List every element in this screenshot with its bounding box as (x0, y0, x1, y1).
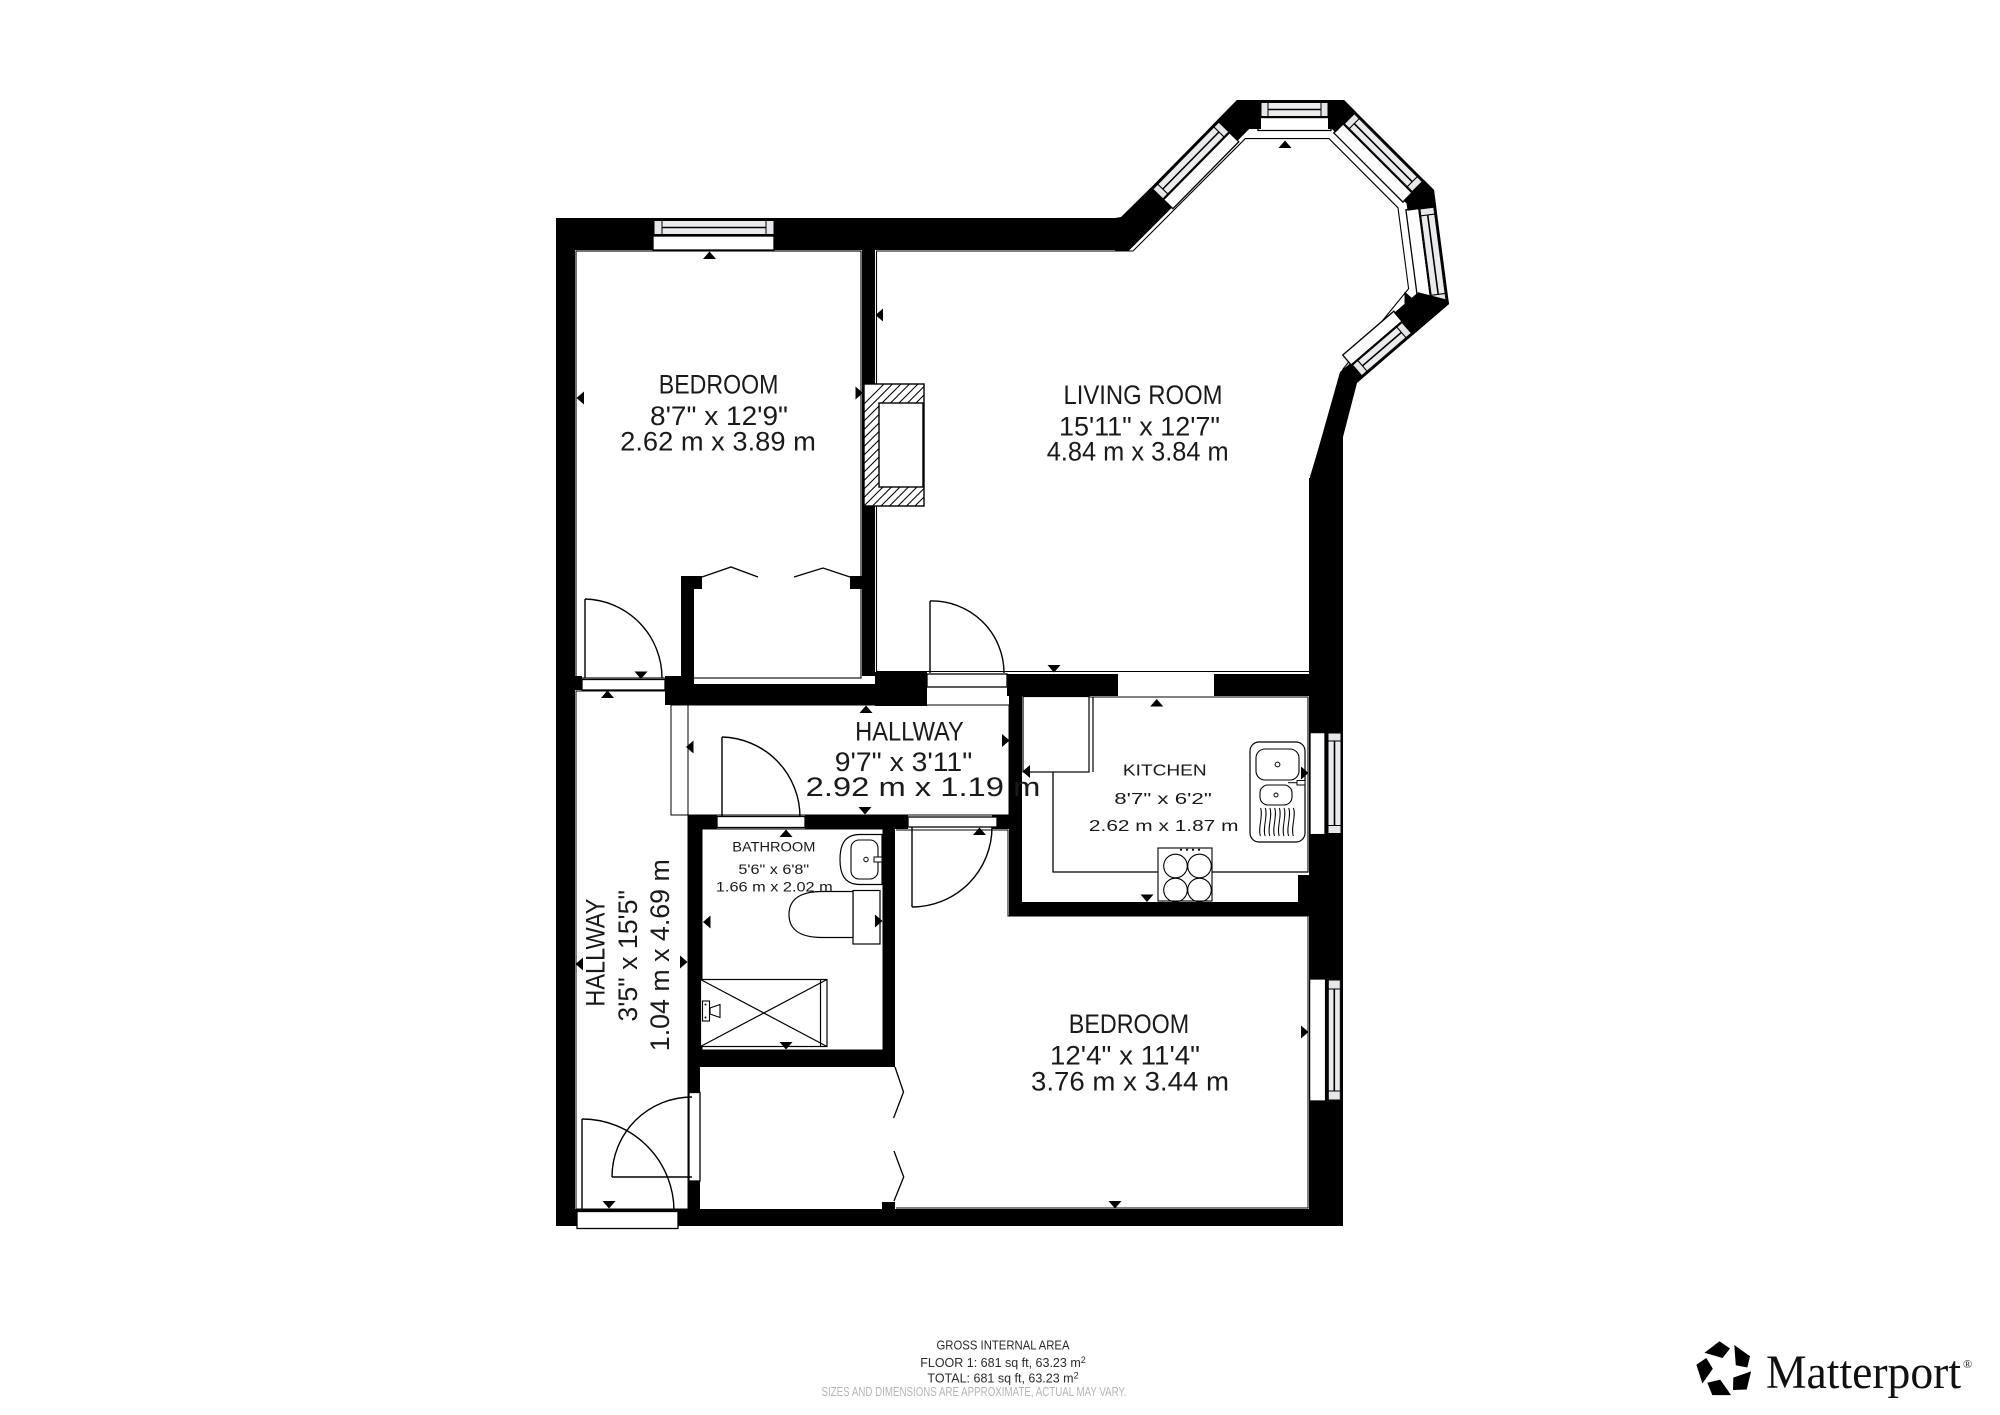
svg-text:1.66 m x 2.02 m: 1.66 m x 2.02 m (716, 879, 833, 895)
svg-text:HALLWAY: HALLWAY (580, 899, 610, 1007)
svg-text:3'5" x 15'5": 3'5" x 15'5" (613, 890, 643, 1022)
svg-text:BEDROOM: BEDROOM (659, 370, 779, 400)
svg-text:GROSS INTERNAL AREA: GROSS INTERNAL AREA (937, 1339, 1071, 1353)
svg-text:FLOOR 1: 681 sq ft, 63.23 m2: FLOOR 1: 681 sq ft, 63.23 m2 (920, 1355, 1086, 1370)
svg-text:SIZES AND DIMENSIONS ARE APPRO: SIZES AND DIMENSIONS ARE APPROXIMATE, AC… (822, 1385, 1127, 1399)
svg-text:8'7" x 6'2": 8'7" x 6'2" (1114, 791, 1212, 808)
svg-text:BEDROOM: BEDROOM (1069, 1009, 1189, 1039)
svg-text:HALLWAY: HALLWAY (855, 717, 964, 747)
svg-text:3.76 m x 3.44 m: 3.76 m x 3.44 m (1031, 1067, 1229, 1097)
svg-text:2.62 m x 1.87 m: 2.62 m x 1.87 m (1089, 818, 1239, 835)
svg-text:2.62 m x 3.89 m: 2.62 m x 3.89 m (620, 426, 816, 456)
svg-text:KITCHEN: KITCHEN (1123, 763, 1207, 780)
svg-text:®: ® (1963, 1357, 1972, 1371)
svg-text:BATHROOM: BATHROOM (732, 839, 815, 855)
svg-text:TOTAL: 681 sq ft, 63.23 m2: TOTAL: 681 sq ft, 63.23 m2 (927, 1371, 1078, 1386)
svg-text:1.04 m x 4.69 m: 1.04 m x 4.69 m (645, 859, 675, 1051)
svg-text:5'6" x 6'8": 5'6" x 6'8" (738, 861, 809, 877)
svg-text:2.92 m x 1.19 m: 2.92 m x 1.19 m (806, 772, 1041, 802)
svg-text:4.84 m x 3.84 m: 4.84 m x 3.84 m (1047, 437, 1229, 467)
svg-text:LIVING ROOM: LIVING ROOM (1064, 380, 1223, 410)
svg-text:Matterport: Matterport (1766, 1346, 1962, 1399)
